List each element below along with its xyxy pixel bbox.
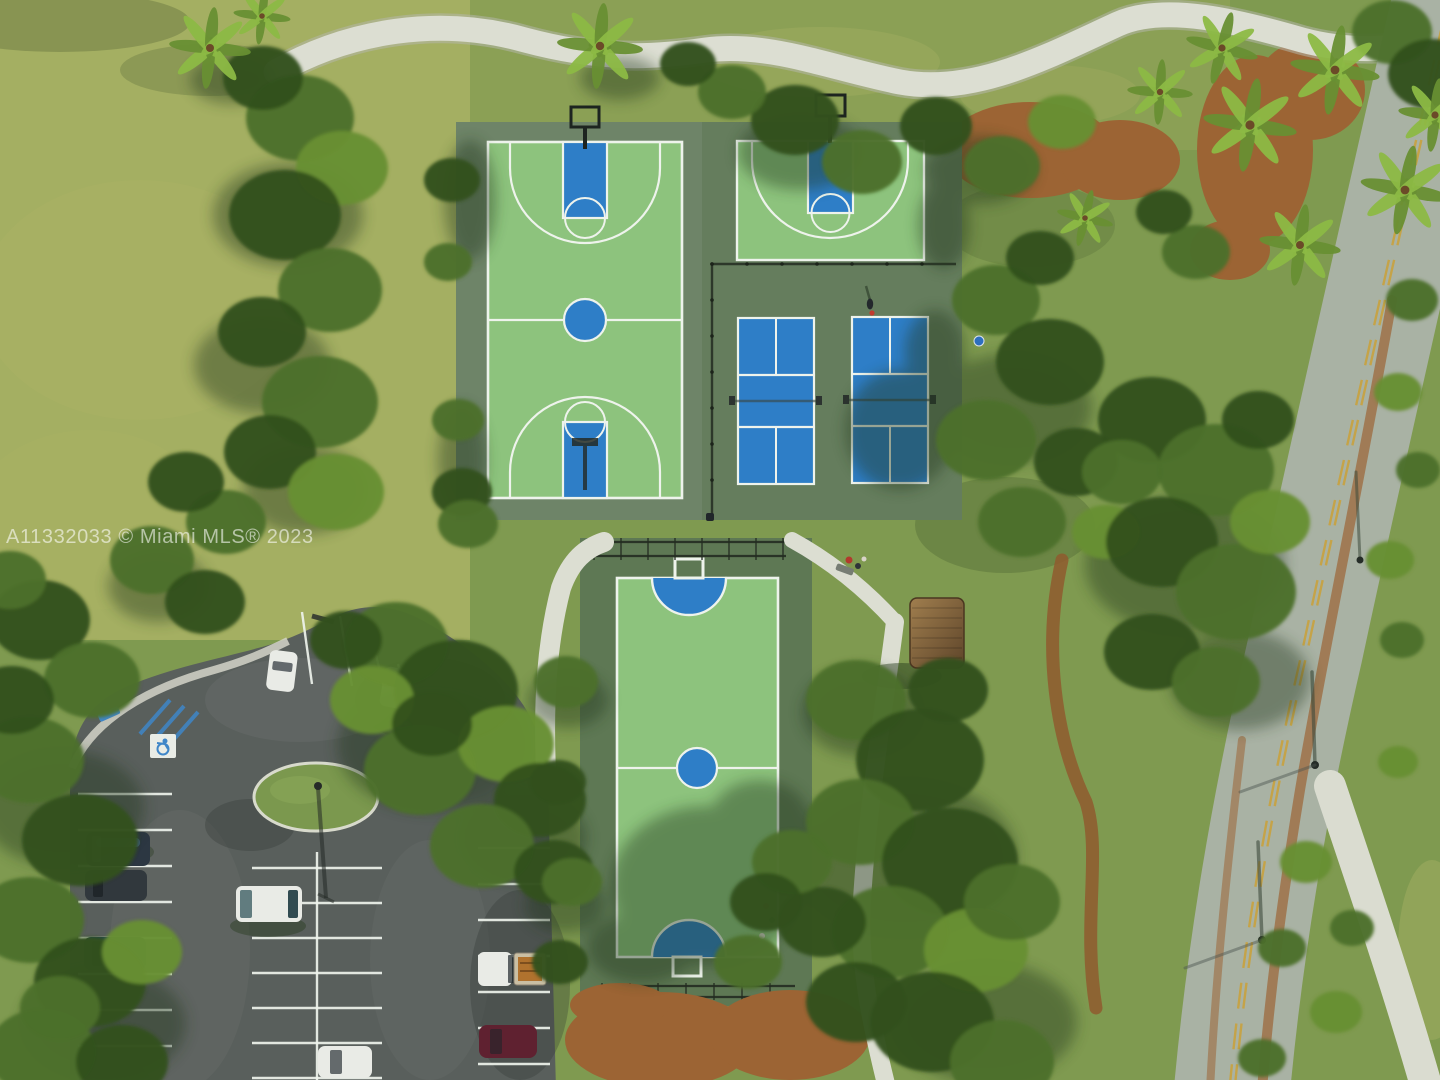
mls-watermark: A11332033 © Miami MLS® 2023 [6,526,314,549]
basketball-full-court [488,107,682,498]
pickleball-court-left [729,318,822,484]
watermark-text: A11332033 © Miami MLS® 2023 [6,526,314,548]
aerial-photo: A11332033 © Miami MLS® 2023 [0,0,1440,1080]
